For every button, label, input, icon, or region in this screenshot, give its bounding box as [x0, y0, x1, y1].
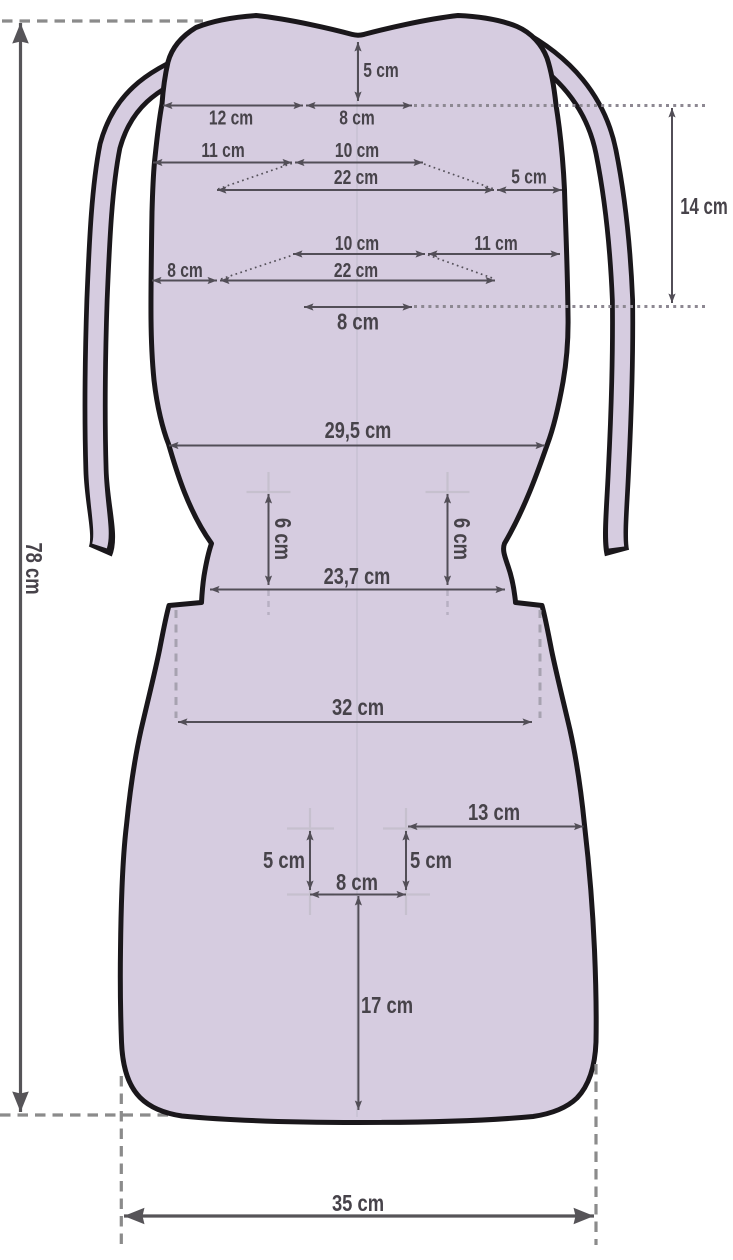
svg-text:32 cm: 32 cm	[332, 695, 384, 720]
svg-text:13 cm: 13 cm	[468, 800, 520, 825]
svg-text:35 cm: 35 cm	[332, 1191, 384, 1216]
svg-text:14 cm: 14 cm	[680, 195, 728, 220]
svg-text:5 cm: 5 cm	[363, 59, 399, 81]
svg-text:10 cm: 10 cm	[335, 232, 379, 254]
svg-text:8 cm: 8 cm	[337, 310, 379, 335]
svg-text:11 cm: 11 cm	[201, 139, 244, 161]
svg-text:8 cm: 8 cm	[167, 259, 203, 281]
svg-text:17 cm: 17 cm	[361, 993, 413, 1018]
svg-text:8 cm: 8 cm	[339, 107, 375, 129]
svg-text:12 cm: 12 cm	[209, 107, 253, 129]
svg-text:8 cm: 8 cm	[336, 870, 378, 895]
svg-text:6 cm: 6 cm	[269, 518, 294, 560]
svg-text:23,7 cm: 23,7 cm	[324, 564, 391, 590]
svg-text:5 cm: 5 cm	[410, 848, 452, 873]
svg-text:78 cm: 78 cm	[20, 542, 45, 594]
svg-text:22 cm: 22 cm	[334, 166, 378, 188]
svg-text:10 cm: 10 cm	[335, 139, 379, 161]
svg-text:5 cm: 5 cm	[511, 166, 547, 188]
svg-text:29,5 cm: 29,5 cm	[325, 418, 392, 444]
svg-text:5 cm: 5 cm	[263, 848, 305, 873]
svg-text:22 cm: 22 cm	[334, 259, 378, 281]
svg-text:6 cm: 6 cm	[448, 518, 473, 560]
svg-text:11 cm: 11 cm	[474, 232, 517, 254]
